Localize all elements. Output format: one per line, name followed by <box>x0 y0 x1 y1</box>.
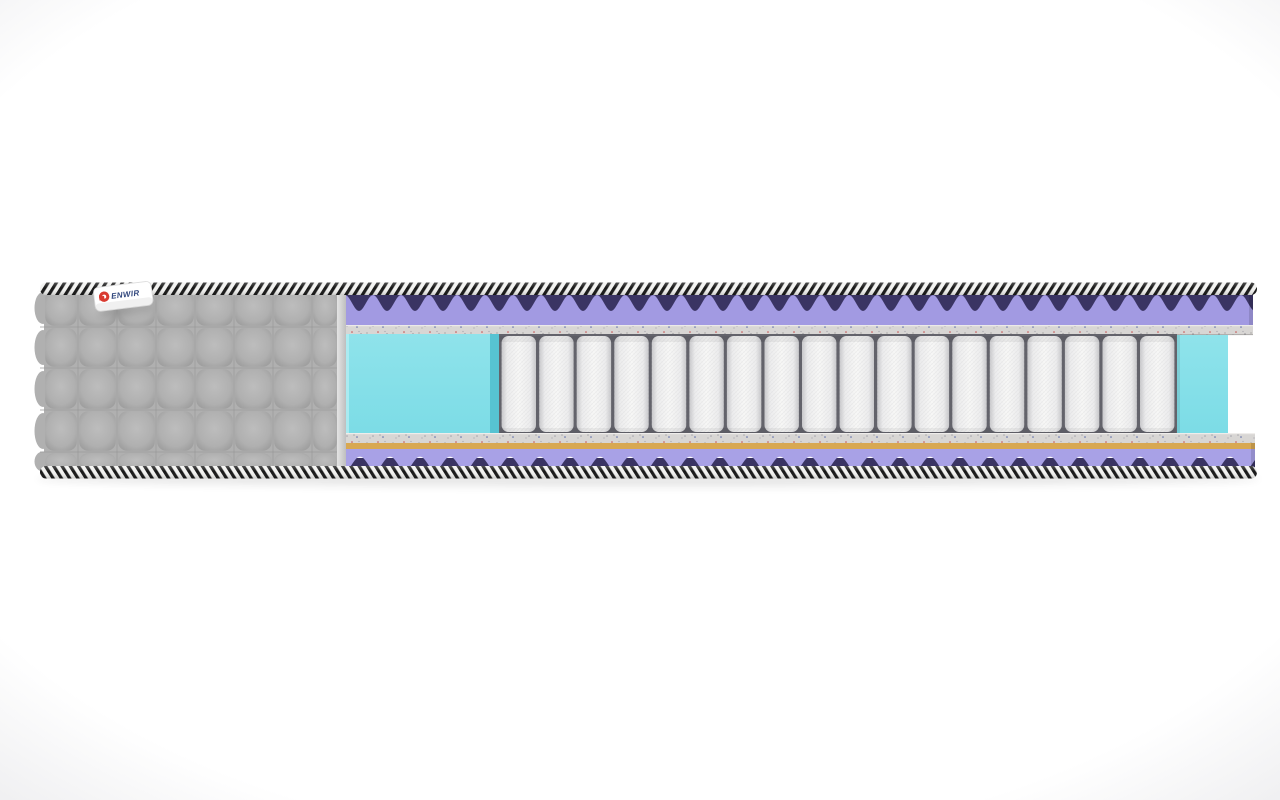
quilt-cell <box>196 369 233 409</box>
quilt-cell <box>196 411 233 451</box>
mattress-product-image: ENWIR <box>0 0 1280 800</box>
quilt-cell <box>157 328 194 367</box>
mattress-cross-section: ENWIR <box>0 0 1280 800</box>
felt-layer-top <box>345 325 1253 335</box>
quilt-cell <box>313 411 337 451</box>
quilt-cell <box>118 328 155 367</box>
quilt-cell <box>196 328 233 367</box>
pocket-spring <box>1065 336 1099 432</box>
side-support-foam-left <box>345 334 499 434</box>
quilt-cell <box>235 328 272 367</box>
quilt-cell <box>157 290 194 326</box>
cutaway-section <box>345 292 1255 472</box>
cover-cut-edge <box>337 290 346 470</box>
pocket-spring <box>502 336 536 432</box>
quilt-cell <box>79 369 116 409</box>
quilt-cell <box>157 369 194 409</box>
pocket-spring <box>877 336 911 432</box>
spring-core <box>497 334 1177 434</box>
quilt-cell <box>313 290 337 326</box>
pocket-spring <box>577 336 611 432</box>
piping-bottom <box>40 466 1257 479</box>
pocket-spring <box>727 336 761 432</box>
side-support-foam-right <box>1177 335 1228 433</box>
pocket-spring <box>840 336 874 432</box>
quilt-cell <box>196 290 233 326</box>
quilt-cell <box>235 369 272 409</box>
quilt-cell <box>235 411 272 451</box>
quilt-cell <box>45 411 77 451</box>
quilt-cell <box>45 290 77 326</box>
pocket-spring <box>952 336 986 432</box>
quilt-cell <box>274 369 311 409</box>
top-foam-layer <box>345 292 1253 327</box>
pocket-spring <box>990 336 1024 432</box>
quilt-cell <box>274 290 311 326</box>
quilt-cell <box>45 369 77 409</box>
pocket-spring <box>915 336 949 432</box>
quilted-cover <box>35 289 347 472</box>
pocket-spring <box>1140 336 1174 432</box>
quilt-cell <box>313 369 337 409</box>
quilt-cell <box>79 411 116 451</box>
quilt-cell <box>118 369 155 409</box>
quilt-cell <box>45 328 77 367</box>
pocket-spring <box>802 336 836 432</box>
quilt-cell <box>118 411 155 451</box>
pocket-spring <box>614 336 648 432</box>
quilt-cell <box>157 411 194 451</box>
piping-top <box>40 283 1257 296</box>
pocket-spring <box>539 336 573 432</box>
pocket-spring <box>765 336 799 432</box>
felt-layer-bottom <box>345 433 1255 443</box>
quilt-cell <box>235 290 272 326</box>
pocket-spring <box>1027 336 1061 432</box>
quilt-cell <box>313 328 337 367</box>
pocket-spring <box>689 336 723 432</box>
quilt-cell <box>274 328 311 367</box>
pocket-spring <box>652 336 686 432</box>
quilt-cell <box>79 328 116 367</box>
quilt-cell <box>274 411 311 451</box>
pocket-spring <box>1103 336 1137 432</box>
